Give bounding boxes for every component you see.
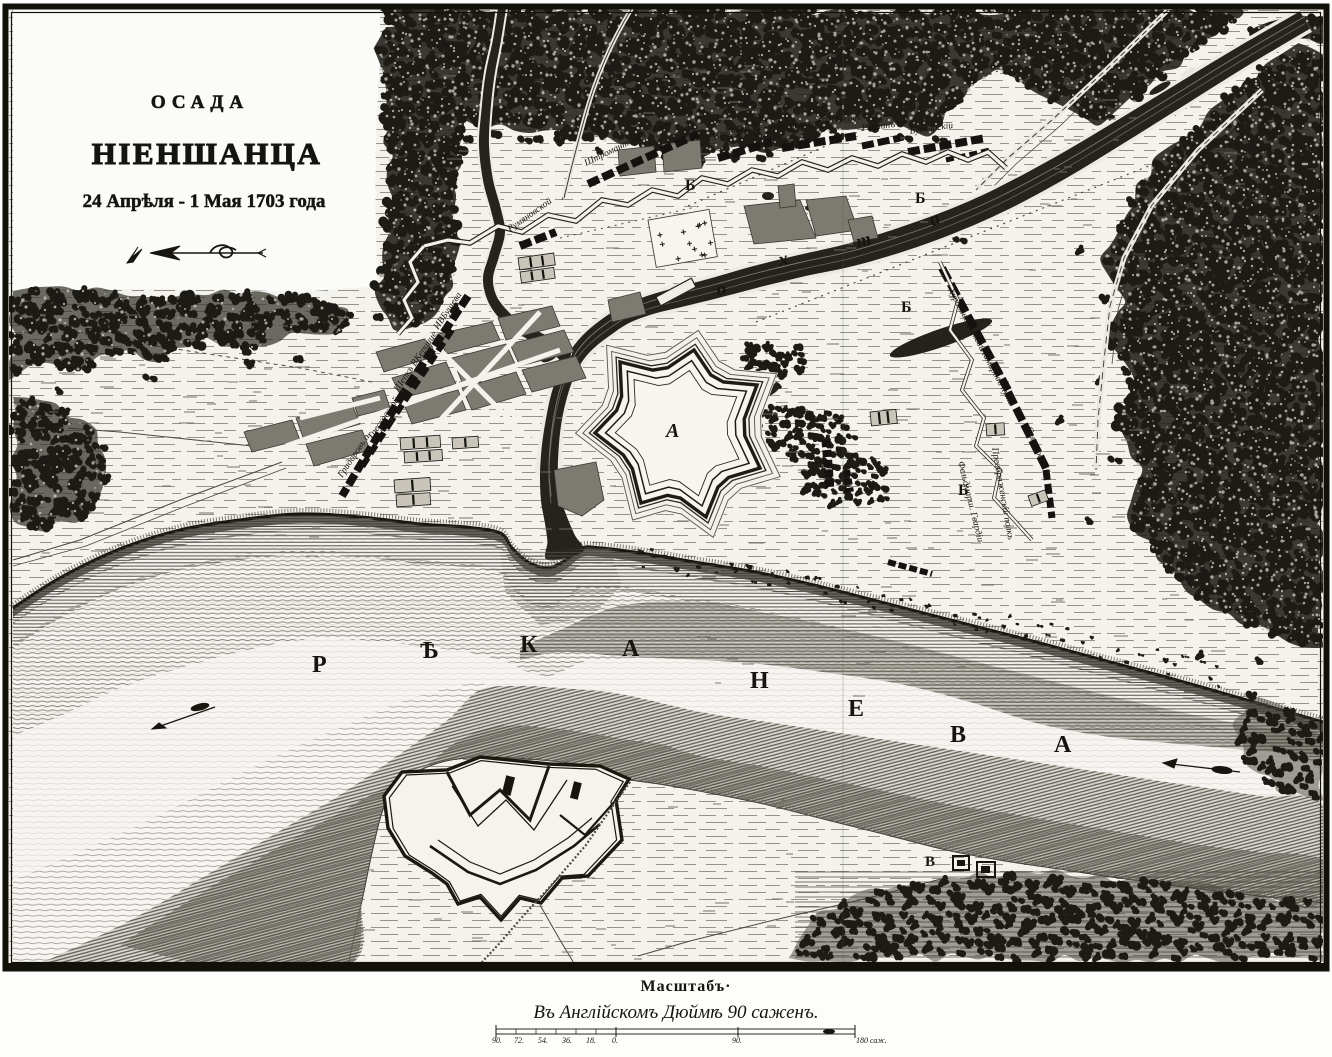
- svg-text:НІЕНШАНЦА: НІЕНШАНЦА: [92, 136, 323, 171]
- svg-text:24 Апрѣля - 1 Мая 1703 года: 24 Апрѣля - 1 Мая 1703 года: [83, 191, 326, 212]
- svg-text:Р: Р: [312, 652, 327, 678]
- svg-text:В: В: [950, 722, 966, 748]
- svg-text:18.: 18.: [586, 1036, 596, 1045]
- svg-text:В: В: [925, 854, 935, 870]
- svg-text:Б: Б: [901, 299, 912, 316]
- svg-text:36.: 36.: [561, 1036, 572, 1045]
- svg-text:Въ Англійскомъ Дюймѣ 90 саженъ: Въ Англійскомъ Дюймѣ 90 саженъ.: [533, 1002, 818, 1023]
- svg-text:К: К: [520, 632, 538, 658]
- svg-text:Б: Б: [685, 177, 696, 194]
- svg-text:72.: 72.: [514, 1036, 524, 1045]
- svg-text:Масштабъ·: Масштабъ·: [640, 978, 731, 995]
- svg-text:0.: 0.: [612, 1036, 618, 1045]
- svg-text:90.: 90.: [492, 1036, 502, 1045]
- svg-text:90.: 90.: [732, 1036, 742, 1045]
- svg-text:Н: Н: [750, 668, 769, 694]
- svg-text:Ѣ: Ѣ: [420, 638, 438, 664]
- svg-text:54.: 54.: [538, 1036, 548, 1045]
- svg-text:Б: Б: [915, 190, 926, 207]
- svg-text:А: А: [1054, 732, 1072, 758]
- svg-text:ОСАДА: ОСАДА: [151, 92, 249, 113]
- svg-text:А: А: [622, 636, 640, 662]
- svg-text:180 саж.: 180 саж.: [856, 1036, 887, 1045]
- svg-text:Е: Е: [848, 696, 864, 722]
- svg-text:А: А: [664, 420, 679, 442]
